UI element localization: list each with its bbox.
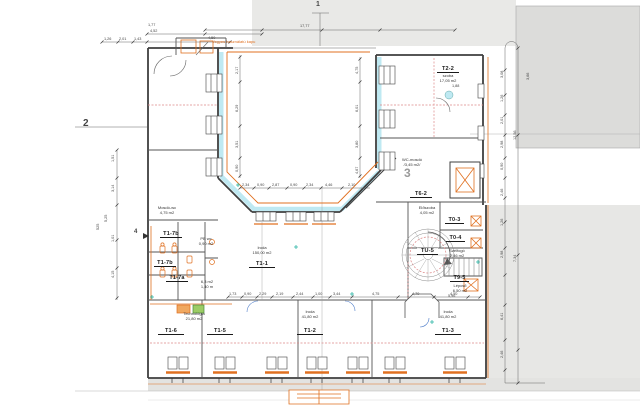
site-gray-areas <box>75 0 640 400</box>
annotation-area-small: 6,3 m21,40 m <box>194 279 220 289</box>
annotation-mosdo-wc: Mosdó-wc4,75 m2 <box>152 205 182 215</box>
dimension-label: 6,29 <box>235 105 239 112</box>
dimension-label: 5,96 <box>448 294 455 298</box>
room-info-t2-2: szoba17,05 m2 <box>434 73 462 83</box>
dimension-label: 4,15 <box>111 271 115 278</box>
new-construction-orange <box>148 40 488 404</box>
annotation-pb-wc: PB wc0,90 m2 <box>193 236 219 246</box>
dimension-label: 3,51 <box>235 141 239 148</box>
room-label-t6-2: T6-2 <box>410 191 432 198</box>
annotation-eloszoba: Előszoba4,05 m2 <box>411 205 443 215</box>
dimension-label: 3,08 <box>500 71 504 78</box>
room-label-t1-7b: T1-7b <box>160 231 182 238</box>
dimension-label: 3,14 <box>111 185 115 192</box>
dimension-label: 3,66 <box>526 73 530 80</box>
room-label-t1-1: T1-1 <box>249 261 275 268</box>
axis-marker-4: 4 <box>134 229 137 235</box>
room-label-t1-7a: T1-7a <box>166 275 188 282</box>
dimension-label: 0,90 <box>500 163 504 170</box>
annotation-wc-mosdo: WC-mosdó/3,45 m2/ <box>395 157 429 167</box>
room-label-t1-3: T1-3 <box>435 328 461 335</box>
axis-marker-3: 3 <box>404 166 411 180</box>
dimension-label: 1,88 <box>452 84 459 88</box>
dimension-label: 4,67 <box>355 167 359 174</box>
dimension-label: 1,26 <box>500 95 504 102</box>
dimension-label: 2,98 <box>500 141 504 148</box>
dimension-label: 2,10 <box>348 183 355 187</box>
room-label-t1-2: T1-2 <box>297 328 323 335</box>
room-label-t0-4: T0-4 <box>446 235 465 242</box>
dimension-label: 2,46 <box>500 351 504 358</box>
floor-plan-canvas: 1,774,524,5017,771,262,011,431,513,145,2… <box>0 0 640 406</box>
dimension-label: 1,51 <box>111 155 115 162</box>
dimension-label: 1,01 <box>111 235 115 242</box>
dimension-label: 1,26 <box>500 219 504 226</box>
dimension-label: 2,98 <box>500 251 504 258</box>
room-label-t1-6: T1-6 <box>158 328 184 335</box>
dimension-label: 6,41 <box>500 313 504 320</box>
room-label-t1-7b-2: T1-7b <box>154 260 176 267</box>
dimension-label: 2,01 <box>119 37 126 41</box>
dimension-label: 2,34 <box>306 183 313 187</box>
dimension-label: 1,00 <box>315 292 322 296</box>
room-info-t1-3: Iroda41,80 m2 <box>432 309 464 319</box>
room-info-t9-5: Lépcső6,50 m2 <box>446 283 474 293</box>
room-label-t2-2: T2-2 <box>437 66 459 73</box>
dimension-label: 4,75 <box>372 292 379 296</box>
dimension-label: 4,52 <box>150 29 157 33</box>
dimension-label: 1,73 <box>229 292 236 296</box>
dimension-label: 4,46 <box>325 183 332 187</box>
dimension-label: 1,43 <box>134 37 141 41</box>
room-label-tu-5: TU-5 <box>417 248 438 255</box>
street-facade-windows <box>168 357 465 369</box>
dimension-label: 4,75 <box>355 67 359 74</box>
dimension-label: 0,90 <box>235 165 239 172</box>
windows <box>168 66 484 369</box>
dimension-label: 0,90 <box>290 183 297 187</box>
dimension-label: 12,56 <box>513 130 517 140</box>
dimension-label: 3,44 <box>333 292 340 296</box>
room-label-t9-5: T9-5 <box>450 275 469 282</box>
dimension-label: 17,77 <box>300 24 310 28</box>
dimension-label: 2,29 <box>259 292 266 296</box>
dimension-label: 3,80 <box>355 141 359 148</box>
elevator <box>450 162 480 198</box>
dimension-label: 6,01 <box>355 105 359 112</box>
room-info-t1-1: Iroda150,00 m2 <box>246 245 278 255</box>
annotation-technologia: Technológia21,80 m2 <box>174 311 214 321</box>
floor-plan-drawing <box>0 0 640 406</box>
axis-marker-1: 1 <box>316 1 320 8</box>
gate-note: Vegyes használatú kapu <box>212 39 255 44</box>
dimension-label: 0,90 <box>257 183 264 187</box>
dimension-label: 2,87 <box>272 183 279 187</box>
exterior-stair <box>289 390 349 404</box>
annotation-szelfogo: Szélfogó2,46 m2 <box>441 248 473 258</box>
dimension-label: 2,34 <box>242 183 249 187</box>
dimension-label: 2,17 <box>235 67 239 74</box>
axis-marker-2: 2 <box>83 118 89 129</box>
dimension-label: 0,90 <box>244 292 251 296</box>
dimension-label: 2,19 <box>276 292 283 296</box>
dimension-label: 7,34 <box>513 255 517 262</box>
room-info-t1-2: Iroda41,80 m2 <box>294 309 326 319</box>
dimension-label: 1,77 <box>148 23 155 27</box>
dimension-label: 2,46 <box>500 189 504 196</box>
dimension-label: 4,70 <box>412 292 419 296</box>
dimension-label: 2,01 <box>500 117 504 124</box>
dimension-label: 5,25 <box>104 215 108 222</box>
dimension-label: 2,44 <box>296 292 303 296</box>
dimension-label: 1,26 <box>104 37 111 41</box>
dimension-label: 525 <box>96 224 100 230</box>
room-label-t1-5: T1-5 <box>207 328 233 335</box>
room-label-t0-3: T0-3 <box>445 217 464 224</box>
